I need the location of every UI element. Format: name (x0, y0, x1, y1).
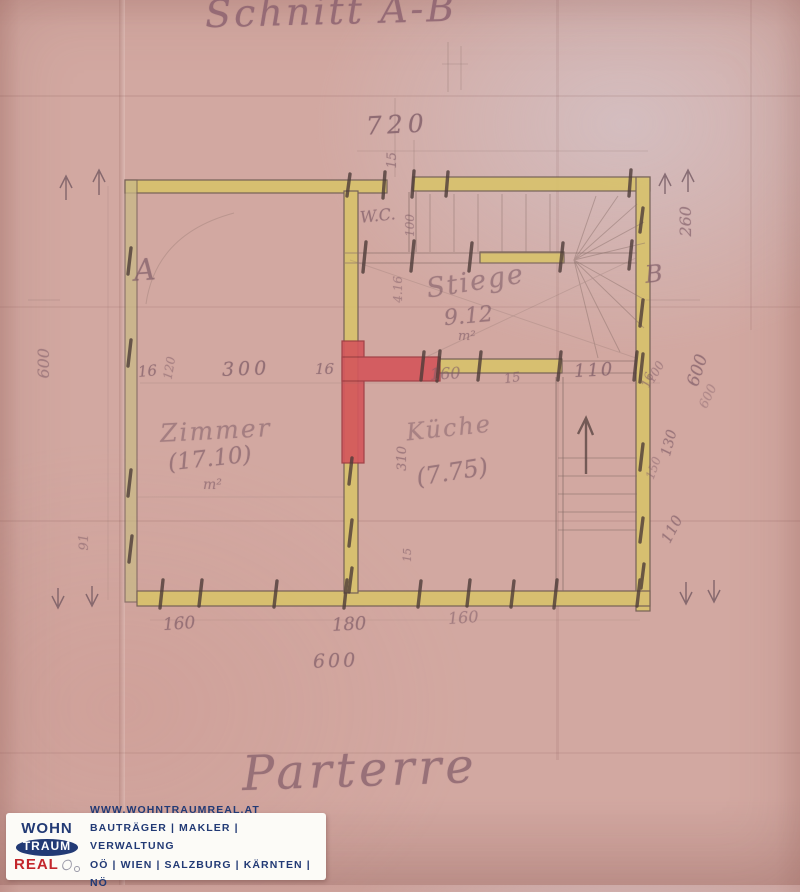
dim-260-right-label: 260 (678, 206, 694, 237)
dim-180-bottom-label: 180 (332, 615, 367, 635)
room-stiege-area: 9.12 (443, 304, 494, 330)
dim-160b-bottom-label: 160 (447, 609, 479, 627)
logo-contact-block: WWW.WOHNTRAUMREAL.AT BAUTRÄGER | MAKLER … (90, 801, 318, 892)
dim-416-stair-label: 4.16 (392, 276, 404, 303)
scanned-floor-plan-page: { "page": { "title": "Schnitt A-B", "flo… (0, 0, 800, 885)
dim-15-kueche-label: 15 (402, 548, 413, 562)
logo-regions: OÖ | WIEN | SALZBURG | KÄRNTEN | NÖ (90, 856, 318, 892)
logo-real-text: REAL (14, 856, 59, 873)
section-title: Schnitt A-B (205, 0, 458, 33)
section-marker-a: A (133, 255, 157, 286)
wohntraumreal-logo: WOHN TRAUM REAL WWW.WOHNTRAUMREAL.AT BAU… (6, 813, 326, 880)
dim-300-label: 300 (222, 359, 271, 380)
dim-120-label: 120 (162, 356, 178, 381)
dim-15-mid-label: 15 (503, 371, 521, 386)
room-zimmer-unit: m² (203, 478, 222, 492)
dim-160a-bottom-label: 160 (162, 615, 196, 634)
dim-720-label: 720 (365, 110, 429, 138)
floor-title: Parterre (241, 742, 478, 798)
dim-600-left-label: 600 (36, 348, 52, 379)
room-zimmer-label: Zimmer (159, 415, 272, 446)
logo-shape-icon (62, 858, 71, 871)
dim-160-mid-label: 160 (430, 365, 461, 383)
logo-traum-badge: TRAUM (16, 839, 78, 856)
dim-110-label: 110 (574, 361, 615, 381)
dim-91-left-label: 91 (78, 534, 91, 551)
logo-wohn-text: WOHN (14, 820, 80, 837)
dim-310-kueche-label: 310 (396, 446, 409, 471)
wohntraumreal-logo-mark: WOHN TRAUM REAL (14, 820, 80, 873)
room-wc-label: W.C. (359, 206, 396, 226)
logo-website: WWW.WOHNTRAUMREAL.AT (90, 801, 318, 819)
dim-16a-label: 16 (137, 363, 157, 380)
dim-100-wc-label: 100 (404, 214, 416, 237)
logo-services: BAUTRÄGER | MAKLER | VERWALTUNG (90, 819, 318, 856)
room-stiege-unit: m² (458, 330, 476, 343)
dim-15-top-label: 15 (386, 152, 399, 169)
dim-600-bottom-label: 600 (313, 651, 359, 672)
section-marker-b: B (644, 261, 664, 287)
dim-16b-label: 16 (315, 362, 334, 377)
logo-shape-small-icon (74, 866, 80, 872)
